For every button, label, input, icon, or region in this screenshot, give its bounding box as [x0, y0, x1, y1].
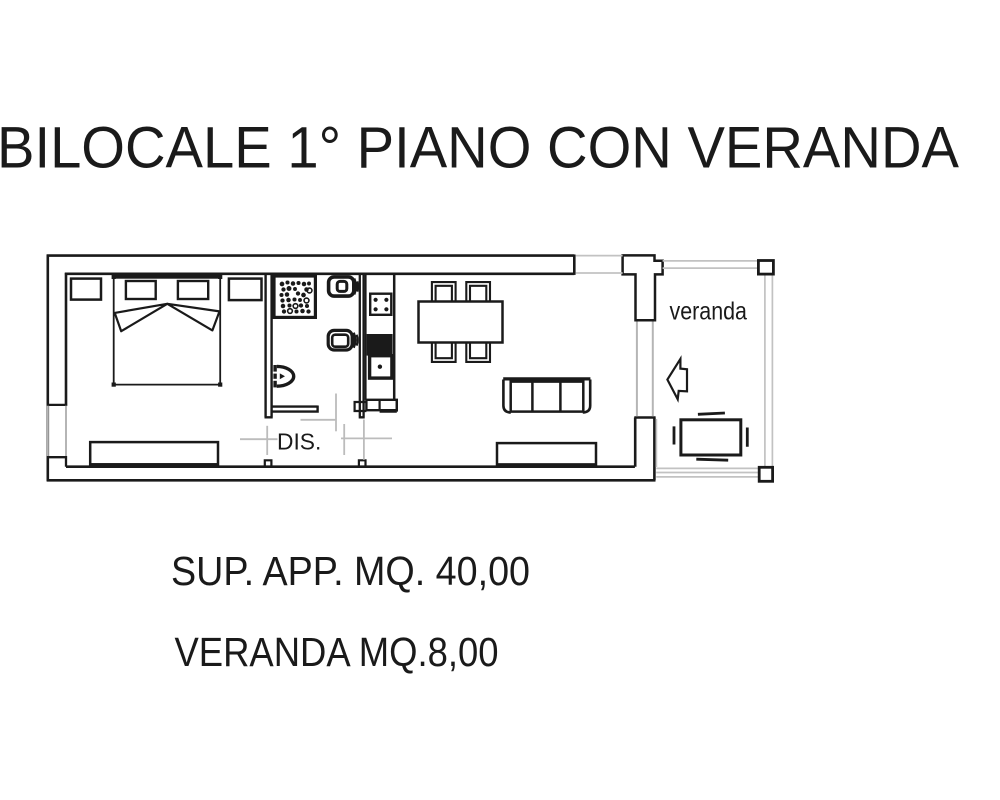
svg-text:veranda: veranda — [670, 298, 748, 326]
svg-text:VERANDA MQ.8,00: VERANDA MQ.8,00 — [175, 629, 499, 675]
svg-text:BILOCALE 1° PIANO CON VERANDA: BILOCALE 1° PIANO CON VERANDA — [0, 116, 959, 181]
svg-text:DIS.: DIS. — [277, 429, 321, 455]
svg-text:SUP. APP. MQ. 40,00: SUP. APP. MQ. 40,00 — [171, 548, 530, 594]
